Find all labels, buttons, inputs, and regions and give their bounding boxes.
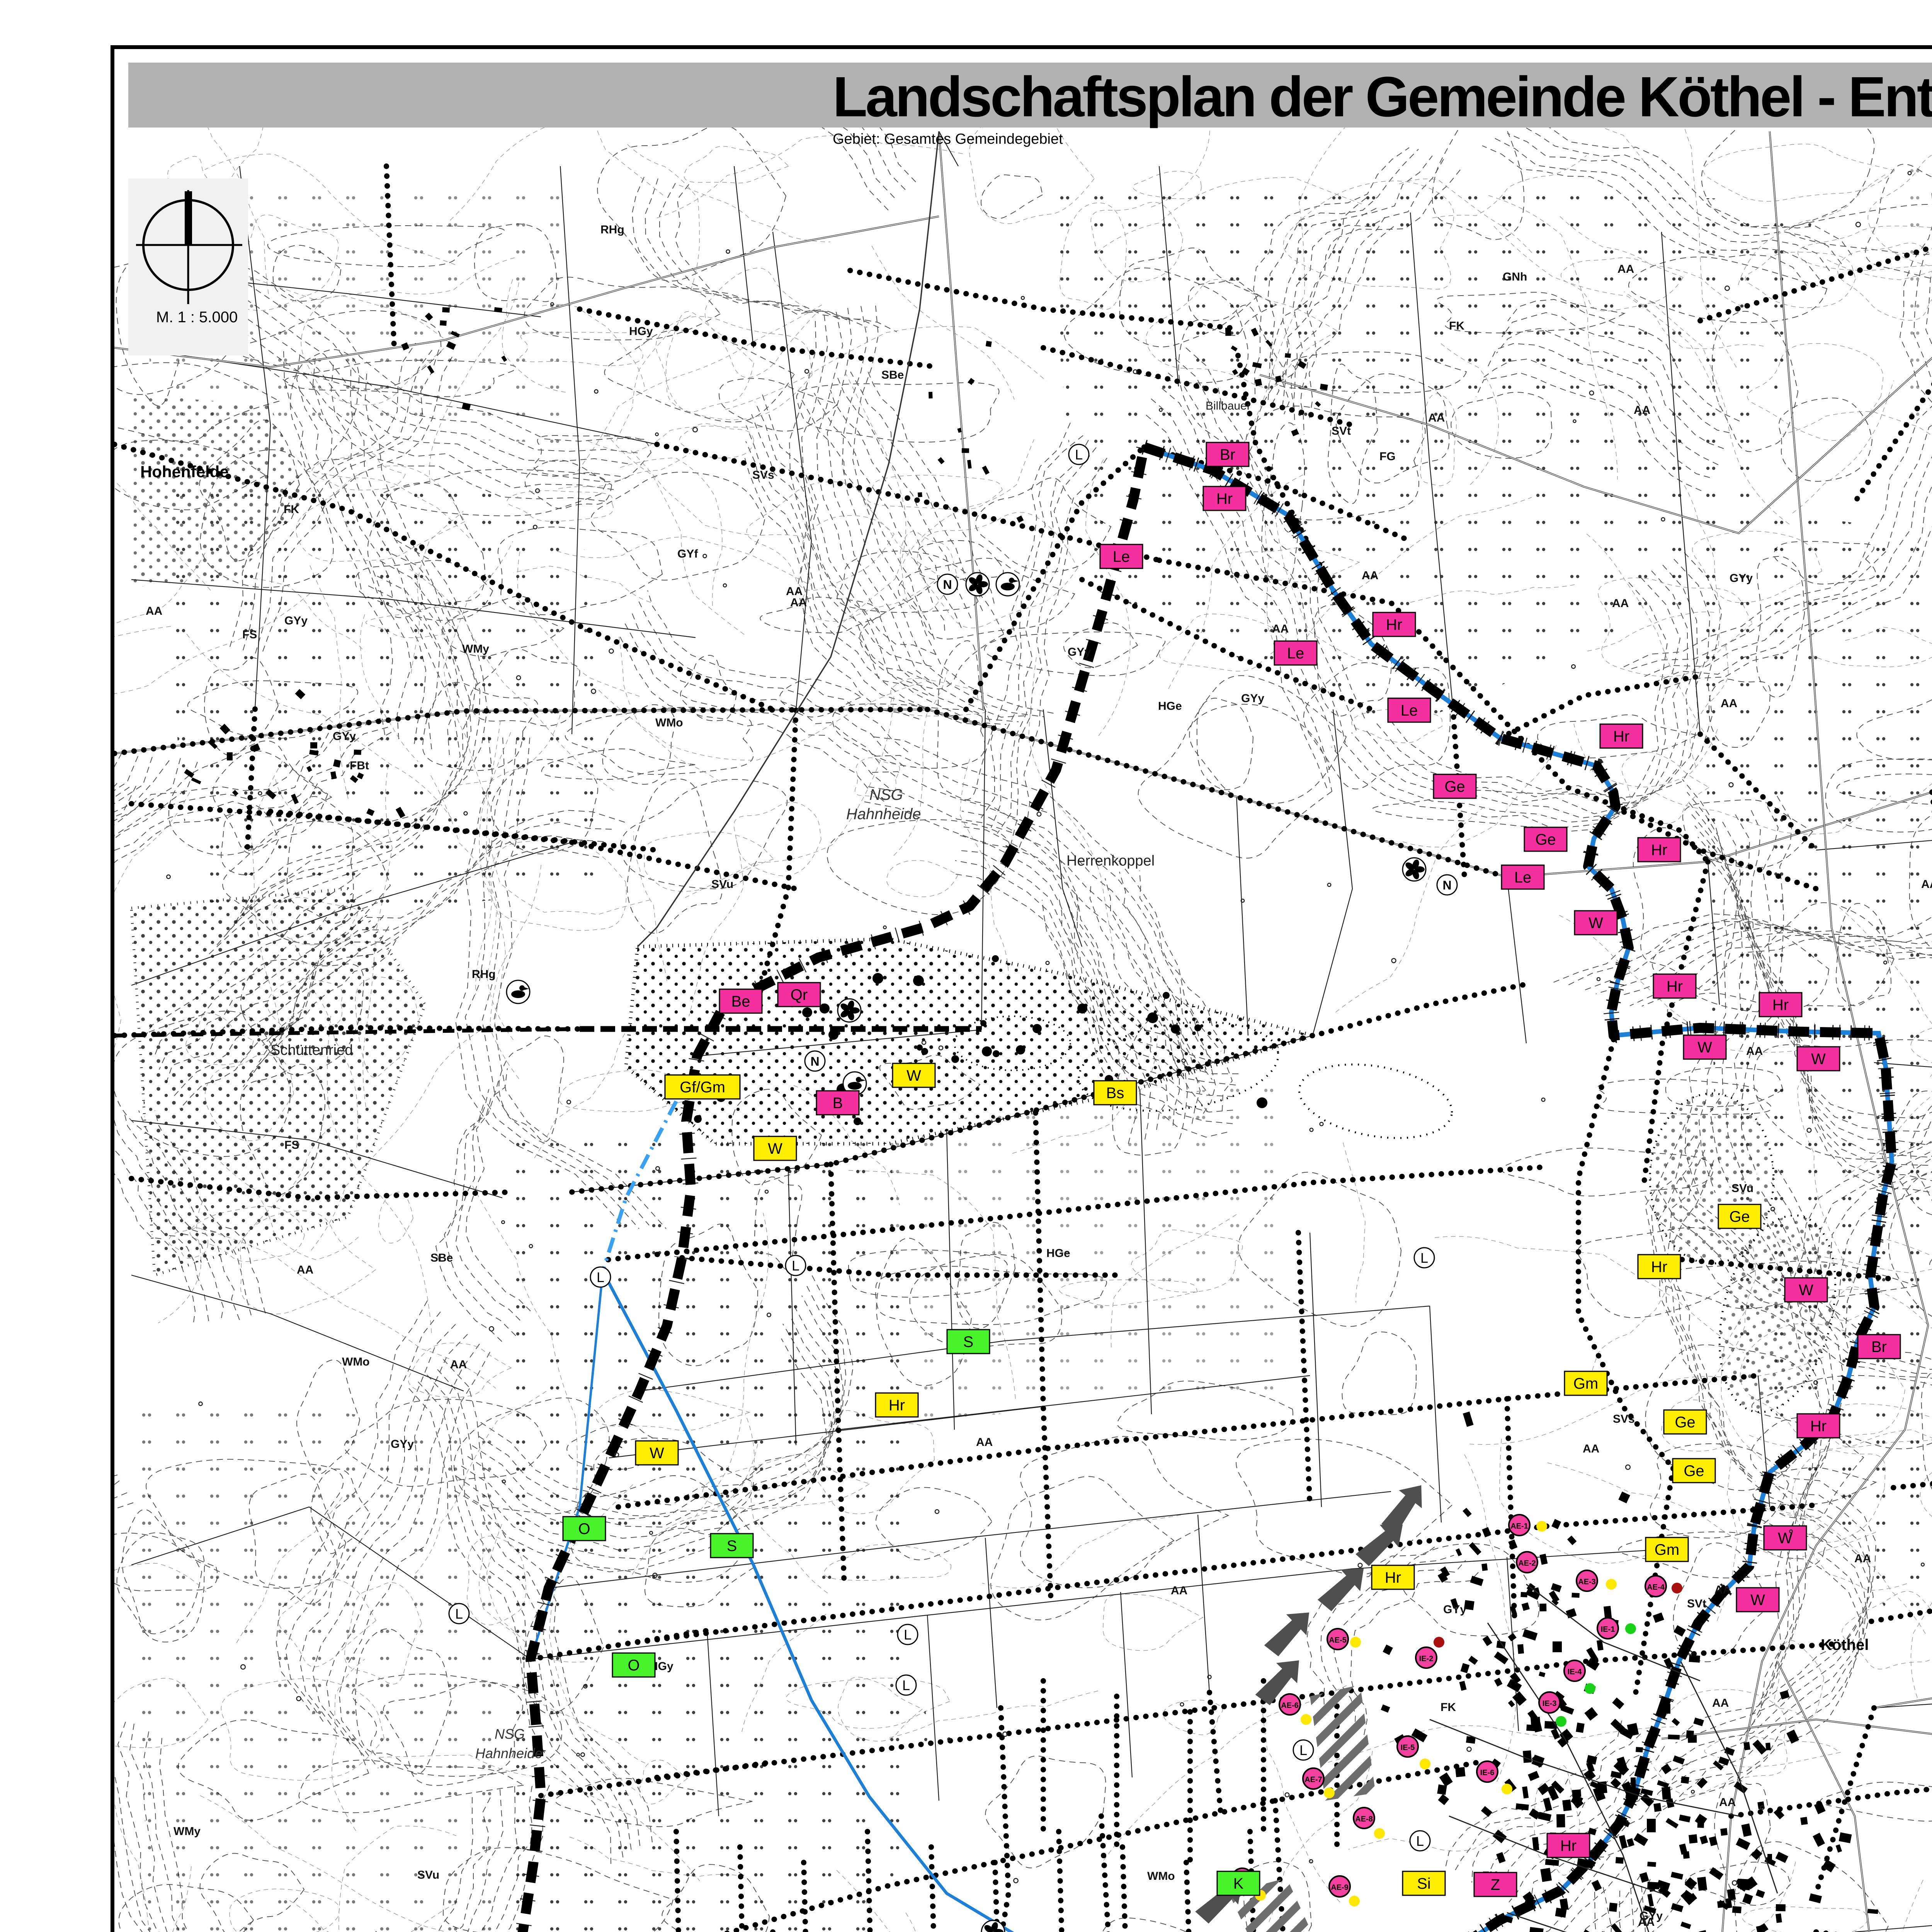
- svg-text:AE-5: AE-5: [1329, 1636, 1347, 1645]
- svg-text:Hohenfelde: Hohenfelde: [140, 463, 229, 481]
- svg-text:W: W: [906, 1067, 921, 1084]
- svg-text:Hr: Hr: [1651, 842, 1667, 859]
- svg-text:NSG: NSG: [869, 786, 903, 803]
- svg-text:AA: AA: [1362, 569, 1378, 582]
- svg-text:AA: AA: [146, 605, 162, 617]
- svg-text:K: K: [1233, 1875, 1244, 1892]
- svg-text:SBe: SBe: [881, 369, 904, 381]
- svg-text:AE-9: AE-9: [1331, 1883, 1349, 1892]
- svg-text:L: L: [1299, 1742, 1307, 1758]
- svg-text:S: S: [963, 1333, 974, 1350]
- svg-text:SVu: SVu: [711, 878, 733, 891]
- svg-text:GYf: GYf: [677, 548, 698, 560]
- svg-text:Gf/Gm: Gf/Gm: [680, 1079, 725, 1096]
- svg-text:Gm: Gm: [1655, 1541, 1679, 1558]
- svg-text:Hr: Hr: [1216, 490, 1233, 507]
- svg-text:AA: AA: [790, 596, 807, 609]
- svg-text:WMy: WMy: [173, 1825, 201, 1838]
- svg-text:AA: AA: [1428, 412, 1445, 424]
- svg-text:GYy: GYy: [333, 730, 356, 743]
- svg-text:GYy: GYy: [391, 1438, 414, 1451]
- svg-text:L: L: [904, 1627, 912, 1643]
- svg-text:Z: Z: [1491, 1876, 1500, 1893]
- svg-text:L: L: [902, 1677, 910, 1693]
- svg-text:AA: AA: [1712, 1697, 1729, 1709]
- svg-text:FS: FS: [242, 628, 257, 641]
- svg-text:AE-1: AE-1: [1510, 1522, 1528, 1531]
- svg-text:AA: AA: [1854, 1552, 1871, 1565]
- svg-text:Hr: Hr: [1667, 978, 1683, 995]
- svg-text:Hahnheide: Hahnheide: [846, 806, 921, 823]
- svg-text:Si: Si: [1417, 1875, 1431, 1892]
- svg-text:AE-3: AE-3: [1578, 1578, 1596, 1586]
- svg-text:RHg: RHg: [600, 223, 624, 236]
- svg-text:Br: Br: [1220, 446, 1235, 463]
- svg-text:SVs: SVs: [1613, 1413, 1635, 1425]
- svg-text:AA: AA: [450, 1358, 467, 1371]
- svg-text:AA: AA: [1171, 1584, 1187, 1597]
- svg-text:AA: AA: [1272, 622, 1289, 635]
- svg-text:SVu: SVu: [1731, 1182, 1753, 1195]
- svg-text:Ge: Ge: [1729, 1208, 1750, 1225]
- svg-text:SVt: SVt: [1687, 1597, 1706, 1610]
- svg-text:Hr: Hr: [1810, 1418, 1827, 1435]
- svg-text:Be: Be: [731, 993, 750, 1010]
- svg-text:Ge: Ge: [1684, 1463, 1704, 1480]
- svg-text:HGe: HGe: [1046, 1247, 1070, 1260]
- svg-text:FG: FG: [1379, 450, 1396, 463]
- svg-text:L: L: [1420, 1250, 1428, 1266]
- svg-text:WMo: WMo: [1147, 1870, 1175, 1883]
- svg-text:WMy: WMy: [462, 643, 489, 655]
- svg-text:AA: AA: [976, 1436, 993, 1449]
- svg-text:SBe: SBe: [430, 1252, 453, 1264]
- svg-text:NSG: NSG: [495, 1726, 525, 1742]
- svg-text:IE-4: IE-4: [1568, 1668, 1582, 1676]
- svg-text:AA: AA: [1719, 1796, 1736, 1809]
- svg-text:W: W: [1799, 1282, 1813, 1299]
- svg-text:L: L: [1416, 1833, 1424, 1849]
- svg-text:Billbauer: Billbauer: [1206, 400, 1251, 412]
- svg-text:AE-8: AE-8: [1355, 1815, 1373, 1823]
- svg-text:FK: FK: [1449, 320, 1464, 332]
- svg-text:WMo: WMo: [655, 716, 683, 729]
- svg-text:W: W: [650, 1445, 664, 1462]
- svg-text:Hr: Hr: [1560, 1837, 1577, 1854]
- svg-text:FK: FK: [1440, 1701, 1456, 1714]
- svg-text:FS: FS: [284, 1139, 299, 1151]
- svg-text:AA: AA: [1617, 263, 1634, 276]
- svg-text:AA: AA: [1634, 404, 1650, 417]
- svg-text:AA: AA: [297, 1264, 313, 1276]
- svg-text:Le: Le: [1514, 869, 1532, 886]
- svg-text:Hr: Hr: [1651, 1259, 1667, 1276]
- svg-text:AA: AA: [1721, 697, 1737, 710]
- svg-text:GYy: GYy: [1730, 572, 1753, 585]
- svg-text:Le: Le: [1287, 645, 1304, 662]
- svg-text:AE-2: AE-2: [1518, 1559, 1536, 1568]
- svg-text:Gm: Gm: [1573, 1375, 1598, 1392]
- svg-text:Ge: Ge: [1444, 778, 1465, 795]
- svg-text:AE-7: AE-7: [1304, 1776, 1322, 1784]
- svg-text:IE-2: IE-2: [1419, 1655, 1434, 1663]
- svg-text:AE-4: AE-4: [1647, 1583, 1665, 1592]
- svg-text:Br: Br: [1871, 1338, 1887, 1355]
- svg-text:HGy: HGy: [629, 325, 653, 338]
- svg-text:Le: Le: [1113, 548, 1130, 565]
- svg-text:FBt: FBt: [350, 759, 369, 772]
- svg-text:IE-1: IE-1: [1601, 1625, 1615, 1634]
- svg-text:W: W: [768, 1140, 782, 1157]
- svg-text:M. 1 : 5.000: M. 1 : 5.000: [156, 309, 238, 326]
- svg-text:AA: AA: [1612, 597, 1629, 610]
- svg-text:Herrenkoppel: Herrenkoppel: [1066, 853, 1155, 869]
- svg-text:N: N: [810, 1054, 819, 1068]
- svg-text:Hr: Hr: [1772, 997, 1789, 1014]
- svg-text:Bs: Bs: [1106, 1085, 1124, 1102]
- svg-text:S: S: [727, 1537, 737, 1554]
- svg-text:HGe: HGe: [1158, 700, 1182, 713]
- svg-text:SVs: SVs: [752, 469, 774, 481]
- svg-text:AA: AA: [1746, 1045, 1763, 1058]
- svg-text:SVt: SVt: [1332, 425, 1351, 437]
- svg-text:L: L: [792, 1258, 799, 1274]
- svg-text:GYy: GYy: [1241, 692, 1264, 705]
- svg-text:GYy: GYy: [1443, 1603, 1466, 1616]
- svg-text:W: W: [1697, 1039, 1712, 1056]
- svg-text:SVu: SVu: [417, 1869, 439, 1881]
- svg-text:W: W: [1811, 1051, 1826, 1068]
- svg-text:Köthel: Köthel: [1821, 1636, 1869, 1653]
- svg-text:L: L: [1075, 447, 1083, 463]
- svg-text:Schüttenried: Schüttenried: [270, 1042, 353, 1058]
- svg-text:WMo: WMo: [342, 1355, 370, 1368]
- svg-text:Ge: Ge: [1535, 831, 1556, 848]
- svg-text:Ge: Ge: [1675, 1414, 1695, 1431]
- svg-text:O: O: [578, 1520, 590, 1537]
- svg-text:W: W: [1750, 1592, 1765, 1609]
- svg-text:GNh: GNh: [1503, 270, 1527, 283]
- svg-text:Qr: Qr: [791, 986, 808, 1003]
- svg-text:AA: AA: [1583, 1442, 1599, 1455]
- svg-text:N: N: [1442, 878, 1451, 892]
- svg-text:L: L: [597, 1269, 604, 1285]
- svg-text:GYy: GYy: [1068, 646, 1091, 658]
- svg-text:Le: Le: [1401, 702, 1418, 719]
- svg-text:AE-6: AE-6: [1281, 1701, 1299, 1710]
- svg-text:N: N: [943, 578, 952, 592]
- svg-text:Hr: Hr: [1385, 1569, 1401, 1586]
- svg-text:FK: FK: [284, 503, 299, 516]
- svg-text:IE-5: IE-5: [1401, 1743, 1415, 1752]
- svg-text:IE-3: IE-3: [1543, 1699, 1557, 1708]
- svg-text:Hr: Hr: [1613, 728, 1629, 745]
- svg-text:Hr: Hr: [1386, 616, 1402, 633]
- svg-text:O: O: [628, 1657, 639, 1674]
- svg-text:RHg: RHg: [472, 968, 496, 981]
- svg-text:AA: AA: [1921, 878, 1932, 891]
- svg-text:Hahnheide: Hahnheide: [475, 1745, 543, 1761]
- svg-text:B: B: [833, 1095, 843, 1112]
- svg-text:L: L: [455, 1606, 463, 1622]
- svg-text:AA: AA: [1714, 1583, 1731, 1596]
- svg-text:IE-6: IE-6: [1480, 1769, 1495, 1777]
- svg-text:Hr: Hr: [889, 1397, 905, 1414]
- svg-text:GYy: GYy: [284, 614, 308, 627]
- svg-text:W: W: [1588, 915, 1603, 932]
- svg-text:AA: AA: [1638, 1916, 1655, 1929]
